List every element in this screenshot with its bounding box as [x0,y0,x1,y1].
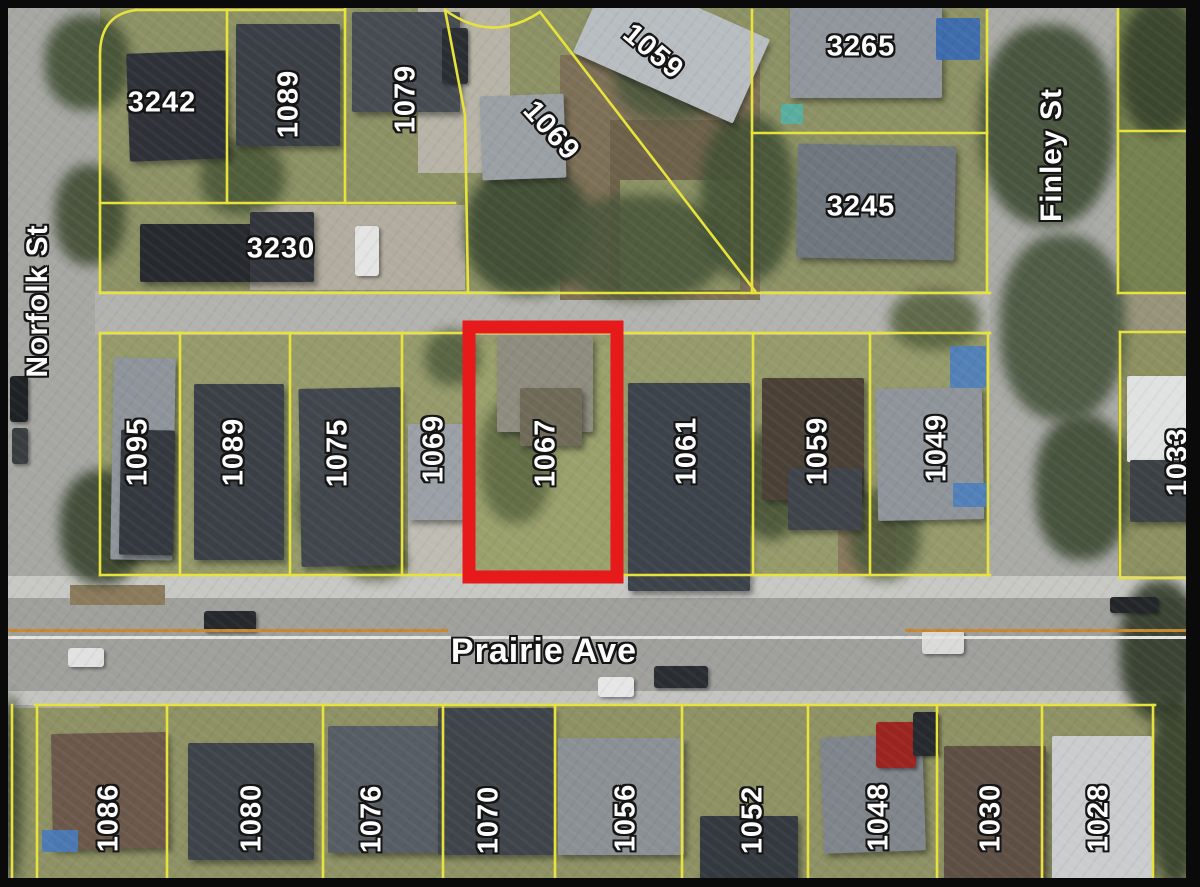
parcel-label-1056: 1056 [612,784,641,853]
parcel-label-1048: 1048 [865,783,894,852]
parcel-label-1067: 1067 [532,419,561,488]
street-label-finley: Finley St [1037,88,1067,222]
parcel-label-1075: 1075 [324,419,353,488]
parcel-label-1030: 1030 [977,784,1006,853]
parcel-label-1052: 1052 [739,786,768,855]
parcel-label-3242: 3242 [128,89,197,118]
street-label-prairie: Prairie Ave [451,634,637,668]
parcel-label-1076: 1076 [358,785,387,854]
parcel-label-1089: 1089 [220,418,249,487]
frame-right [1186,0,1200,887]
aerial-map: 3242108910791069105932653245323010951089… [0,0,1200,887]
parcel-label-1069: 1069 [517,96,584,166]
parcel-label-3245: 3245 [827,193,896,222]
parcel-label-3230: 3230 [247,235,316,264]
frame-bottom [0,878,1200,887]
parcel-label-1095: 1095 [124,418,153,487]
parcel-label-1061: 1061 [673,417,702,486]
parcel-label-1049: 1049 [923,414,952,483]
labels-layer: 3242108910791069105932653245323010951089… [0,0,1200,887]
parcel-label-1089: 1089 [275,70,304,139]
parcel-label-1070: 1070 [475,786,504,855]
parcel-label-1080: 1080 [238,784,267,853]
parcel-label-1079: 1079 [392,65,421,134]
parcel-label-1059: 1059 [617,19,688,85]
parcel-label-3265: 3265 [827,33,896,62]
parcel-label-1086: 1086 [95,784,124,853]
frame-top [0,0,1200,8]
parcel-label-1069: 1069 [420,415,449,484]
street-label-norfolk: Norfolk St [23,224,53,377]
parcel-label-1028: 1028 [1085,784,1114,853]
parcel-label-1059: 1059 [804,417,833,486]
frame-left [0,0,8,887]
